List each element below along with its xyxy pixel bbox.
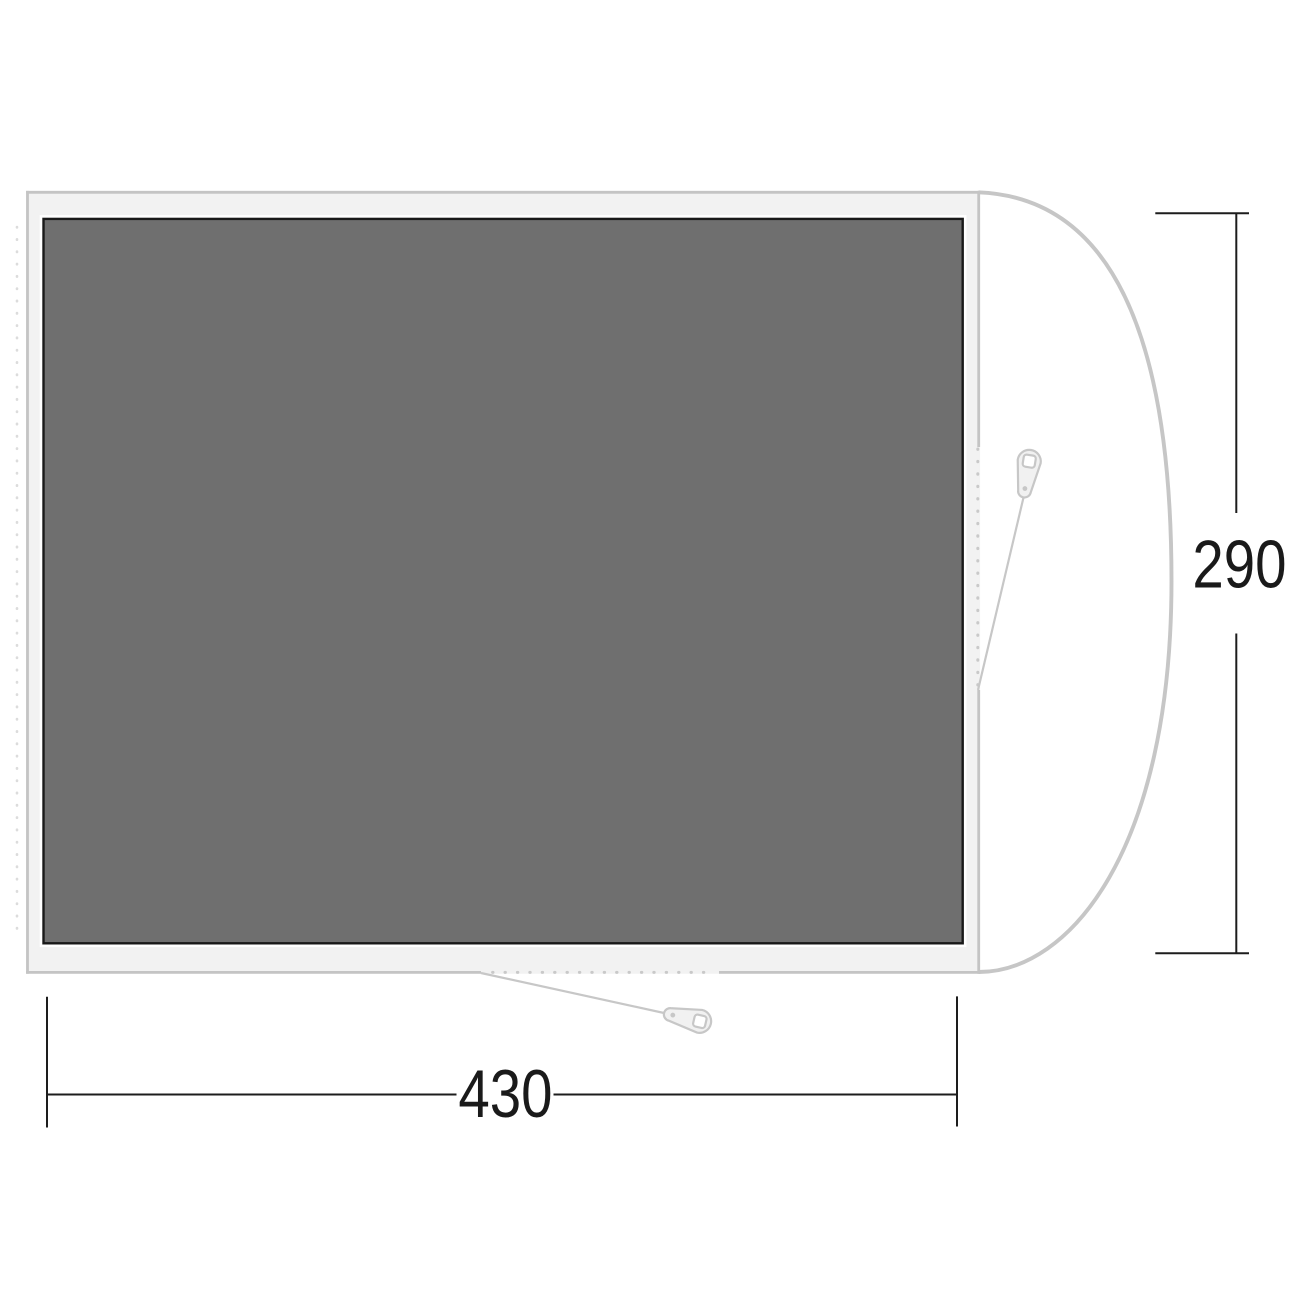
svg-text:430: 430	[458, 1056, 552, 1132]
svg-text:290: 290	[1192, 527, 1286, 603]
